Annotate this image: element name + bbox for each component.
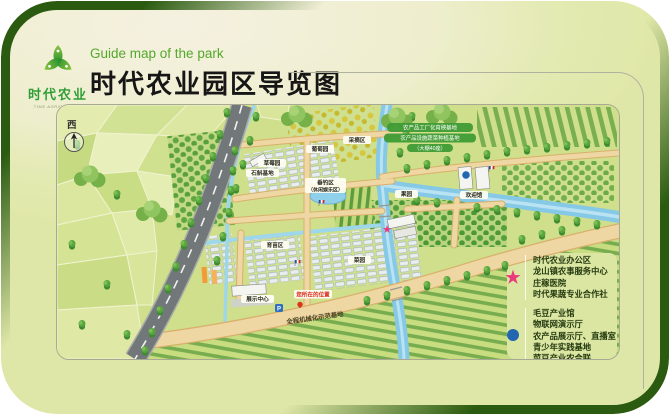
legend-star-items: 时代农业办公区 龙山镇农事服务中心 庄稼医院 时代果蔬专业合作社 <box>525 255 608 300</box>
canal-south <box>225 237 227 323</box>
right-orchard <box>502 161 614 203</box>
legend-dot-marker-on-map <box>462 171 470 179</box>
park-logo: 时代农业 TIME AGRICULTURE <box>25 42 91 109</box>
label-vegetable: 菜园 <box>353 256 366 264</box>
legend-item: 物联网演示厅 <box>533 319 616 330</box>
park-map: P ★ 农产品工厂化育秧基地 农产品设施蔬菜种植基地 <box>56 104 620 360</box>
park-logo-emblem <box>29 42 87 78</box>
legend-star-marker-on-map: ★ <box>382 224 392 236</box>
star-icon: ★ <box>501 271 525 285</box>
header-titles: Guide map of the park 时代农业园区导览图 <box>90 46 342 101</box>
legend-item: 青少年实践基地 <box>533 342 616 353</box>
label-dendrobium: 石斛基地 <box>250 169 274 177</box>
legend-item: 时代果蔬专业合作社 <box>533 289 608 300</box>
label-grape: 葡萄园 <box>311 145 329 153</box>
legend-group-dot: 毛豆产业馆 物联网演示厅 农产品展示厅、直播室 青少年实践基地 菜豆产业农合联 <box>501 308 617 360</box>
label-orchard: 果园 <box>400 190 413 198</box>
poster-card: 时代农业 TIME AGRICULTURE Guide map of the p… <box>1 1 669 414</box>
legend-item: 时代农业办公区 <box>533 255 608 266</box>
orange-sign <box>212 270 218 284</box>
compass-west-label: 西 <box>67 120 77 131</box>
legend-item: 菜豆产业农合联 <box>533 353 616 360</box>
legend-item: 农产品展示厅、直播室 <box>533 331 616 342</box>
label-picking: 采摘区 <box>349 136 366 144</box>
legend-group-star: ★ 时代农业办公区 龙山镇农事服务中心 庄稼医院 时代果蔬专业合作社 <box>501 255 617 300</box>
label-exhibition-center: 展示中心 <box>246 295 269 303</box>
label-strawberry: 草莓园 <box>264 159 281 167</box>
legend-item: 龙山镇农事服务中心 <box>533 266 608 277</box>
label-fishing-2: （休闲娱乐区） <box>308 187 343 194</box>
dot-icon <box>501 329 525 344</box>
svg-text:农产品工厂化育秧基地: 农产品工厂化育秧基地 <box>403 124 458 132</box>
label-seedling: 育苗区 <box>267 241 284 249</box>
subtitle-en: Guide map of the park <box>90 46 342 61</box>
logo-name: 时代农业 <box>25 84 91 103</box>
legend-item: 毛豆产业馆 <box>533 308 616 319</box>
hedge-rows <box>477 107 617 147</box>
svg-text:农产品设施蔬菜种植基地: 农产品设施蔬菜种植基地 <box>400 134 460 142</box>
label-welcome-hall: 欢迎馆 <box>465 191 483 199</box>
parking-sign: P <box>275 304 283 313</box>
page-title: 时代农业园区导览图 <box>90 64 342 101</box>
legend-item: 庄稼医院 <box>533 278 608 289</box>
guide-map-poster: 时代农业 TIME AGRICULTURE Guide map of the p… <box>0 0 670 415</box>
svg-text:（大棚40座）: （大棚40座） <box>414 144 446 152</box>
svg-text:P: P <box>277 307 281 313</box>
label-fishing-1: 垂钓区 <box>317 179 334 187</box>
legend-dot-items: 毛豆产业馆 物联网演示厅 农产品展示厅、直播室 青少年实践基地 菜豆产业农合联 <box>525 308 616 360</box>
label-you-are-here: 您所在的位置 <box>296 290 330 298</box>
map-legend: ★ 时代农业办公区 龙山镇农事服务中心 庄稼医院 时代果蔬专业合作社 毛豆产业馆… <box>501 255 617 360</box>
